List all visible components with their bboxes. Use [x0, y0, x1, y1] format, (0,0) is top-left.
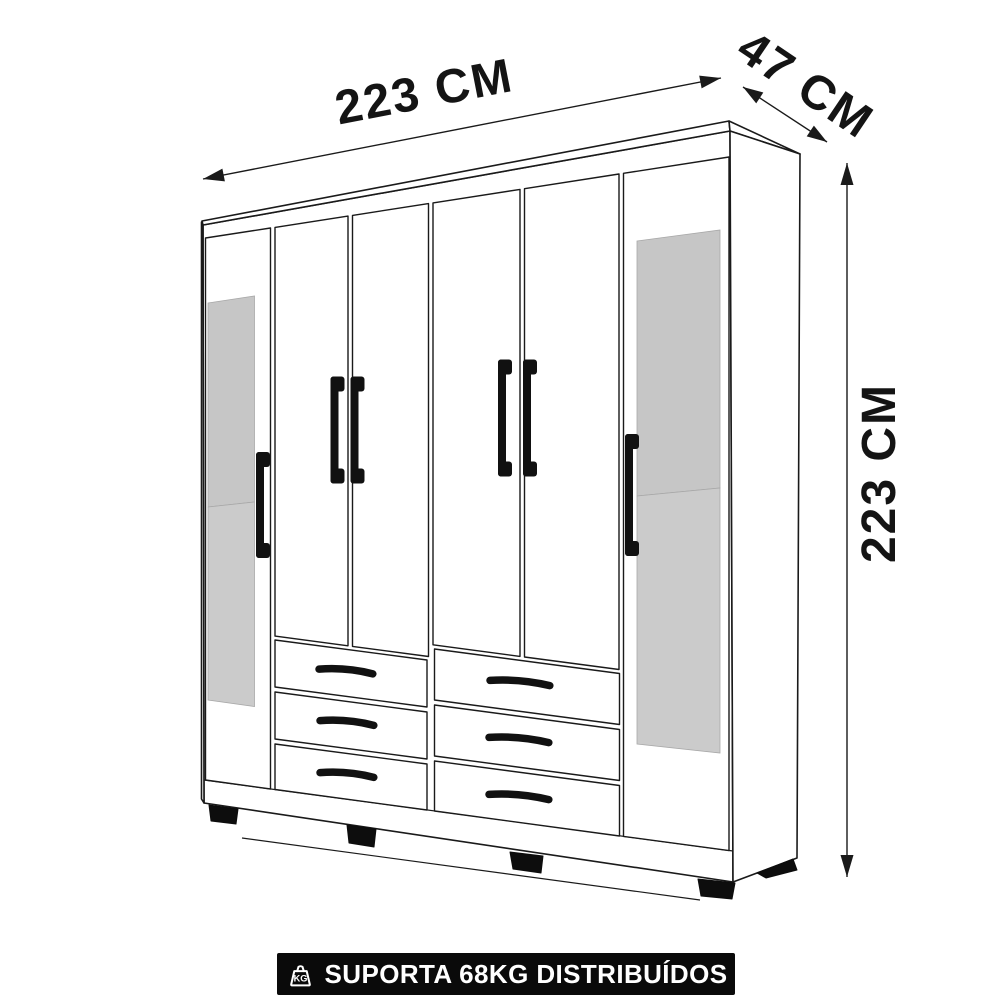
arrowhead-icon [841, 855, 854, 877]
door-5 [525, 174, 620, 670]
weight-kg-icon: KG [285, 959, 316, 990]
foot [347, 825, 376, 847]
depth-dimension: 47 CM [728, 21, 883, 150]
product-dimension-diagram: 223 CM 47 CM 223 CM KG SUPORTA 68KG DIST… [0, 0, 1000, 1000]
wardrobe-right-side-panel [730, 131, 800, 882]
capacity-banner-text: SUPORTA 68KG DISTRIBUÍDOS [325, 961, 728, 987]
height-dimension-label: 223 CM [853, 383, 906, 563]
wardrobe-left-edge [202, 222, 205, 803]
door-4 [433, 189, 520, 656]
arrowhead-icon [699, 76, 721, 89]
left-mirror-lower [208, 502, 255, 707]
arrowhead-icon [203, 169, 225, 182]
foot [698, 879, 735, 899]
left-mirror-upper [208, 296, 255, 507]
depth-dimension-label: 47 CM [728, 21, 883, 150]
arrowhead-icon [743, 87, 763, 103]
right-mirror-upper [637, 230, 720, 496]
foot [510, 852, 543, 873]
wardrobe-diagram: 223 CM 47 CM 223 CM [0, 0, 1000, 1000]
arrowhead-icon [841, 163, 854, 185]
capacity-banner: KG SUPORTA 68KG DISTRIBUÍDOS [277, 953, 735, 995]
door-3 [353, 204, 429, 657]
kg-icon-label: KG [293, 973, 307, 983]
right-mirror-lower [637, 488, 720, 753]
height-dimension: 223 CM [841, 163, 906, 877]
